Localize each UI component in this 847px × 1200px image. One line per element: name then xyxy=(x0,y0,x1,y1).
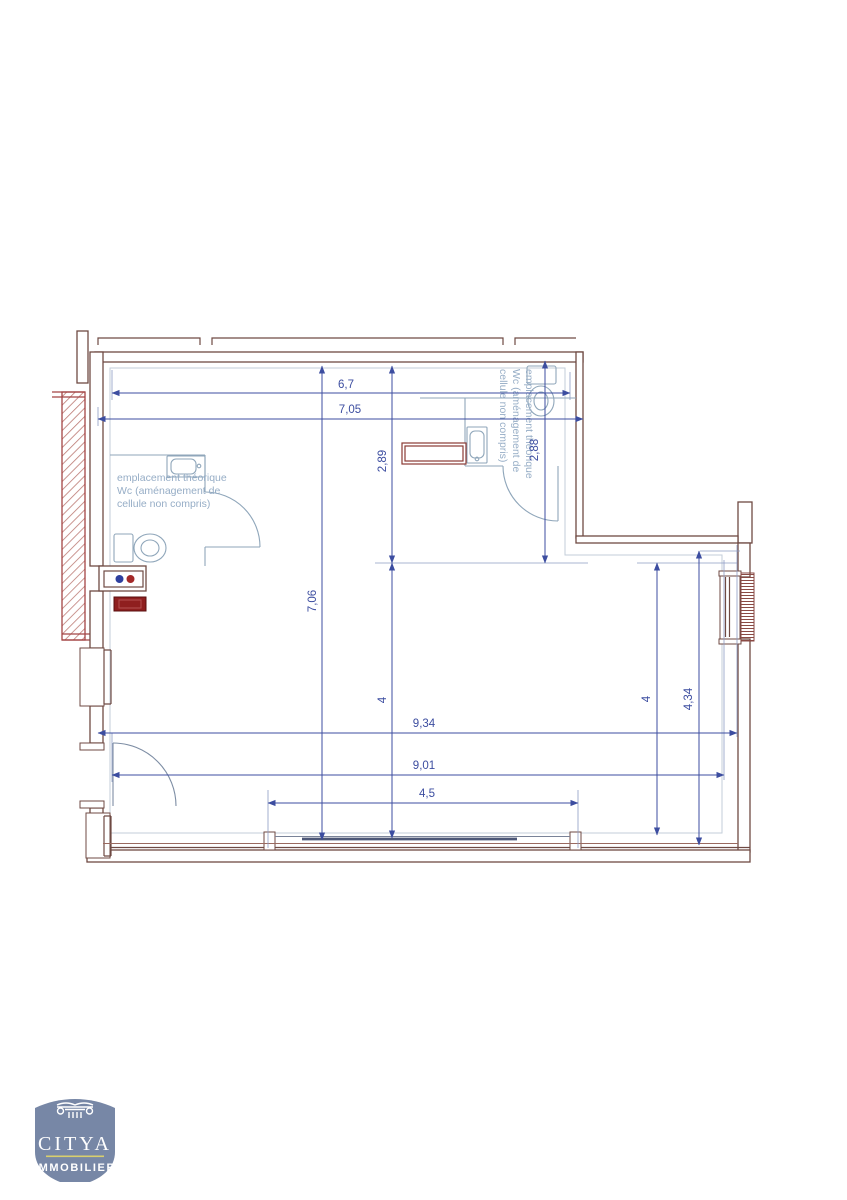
extension-lines xyxy=(98,370,740,848)
left-wall-seg2 xyxy=(90,591,103,648)
dim-label-2-89: 2,89 xyxy=(377,450,389,472)
wc-note-line: emplacement théorique xyxy=(117,472,227,484)
electrical-block xyxy=(114,597,146,611)
top-neighbour-wall-segment xyxy=(212,338,503,345)
dim-label-9-34: 9,34 xyxy=(413,718,436,730)
left-wall-seg1 xyxy=(90,352,103,566)
dim-label-9-01: 9,01 xyxy=(413,760,435,772)
sink-icon xyxy=(467,427,487,463)
storefront-post xyxy=(570,832,581,850)
wc-note-line: Wc (aménagement de xyxy=(117,485,220,497)
openings xyxy=(80,571,754,858)
wc-note-line: Wc (aménagement de xyxy=(510,369,522,472)
window-icon xyxy=(86,813,110,858)
right-neighbour-wall-stub xyxy=(738,502,752,543)
wc-note-left: emplacement théorique Wc (aménagement de… xyxy=(117,472,227,510)
party-wall-hatched xyxy=(62,392,85,640)
dim-label-7-06: 7,06 xyxy=(307,590,319,612)
dim-label-4-5: 4,5 xyxy=(419,788,435,800)
door-jamb xyxy=(80,801,104,808)
cold-water-dot xyxy=(116,575,124,583)
wc-note-line: cellule non compris) xyxy=(117,498,210,510)
wc-note-line: cellule non compris) xyxy=(497,369,509,462)
door-jamb xyxy=(80,743,104,750)
top-left-wall-stub xyxy=(77,331,88,383)
wc-note-right: emplacement théorique Wc (aménagement de… xyxy=(497,369,535,479)
upper-right-wall xyxy=(576,352,583,538)
window-left-bottom xyxy=(86,813,111,858)
hot-water-dot xyxy=(127,575,135,583)
window-left-top xyxy=(80,648,111,706)
top-neighbour-wall-segment xyxy=(98,338,200,345)
logo-subtitle-text: IMMOBILIER xyxy=(34,1162,116,1174)
wc-right: emplacement théorique Wc (aménagement de… xyxy=(402,366,576,521)
left-wall-seg3 xyxy=(90,706,103,743)
dim-label-4-left: 4 xyxy=(377,696,389,703)
dim-label-4-right: 4 xyxy=(641,695,653,702)
right-wall-lower xyxy=(738,639,750,852)
toilet-icon xyxy=(114,534,166,562)
top-neighbour-wall-segment xyxy=(515,338,576,345)
wc-left: emplacement théorique Wc (aménagement de… xyxy=(110,455,260,566)
window-cap xyxy=(719,571,741,576)
floor-plan-drawing: emplacement théorique Wc (aménagement de… xyxy=(0,0,847,1200)
bottom-wall xyxy=(87,850,750,862)
logo-divider xyxy=(46,1156,104,1158)
floor-plan-page: emplacement théorique Wc (aménagement de… xyxy=(0,0,847,1200)
dim-label-2-88: 2,88 xyxy=(529,439,541,461)
radiator-icon xyxy=(741,573,754,641)
window-icon xyxy=(80,648,104,706)
exterior-walls xyxy=(87,352,750,862)
window-cap xyxy=(719,639,741,644)
duct-box xyxy=(402,443,466,464)
dim-label-6-7: 6,7 xyxy=(338,379,354,391)
door-swing-icon xyxy=(205,492,260,547)
notch-wall xyxy=(576,536,738,543)
storefront-post xyxy=(264,832,275,850)
dimensions: 6,7 7,05 9,34 9,01 4,5 7,06 2,89 4 2,88 … xyxy=(98,361,740,848)
citya-logo: CITYA IMMOBILIER xyxy=(34,1099,116,1182)
dim-label-7-05: 7,05 xyxy=(339,404,361,416)
logo-brand-text: CITYA xyxy=(38,1133,112,1155)
wc-note-line: emplacement théorique xyxy=(523,369,535,479)
top-wall xyxy=(95,352,583,362)
water-meter-box xyxy=(99,566,146,591)
dim-label-4-34: 4,34 xyxy=(683,687,695,710)
